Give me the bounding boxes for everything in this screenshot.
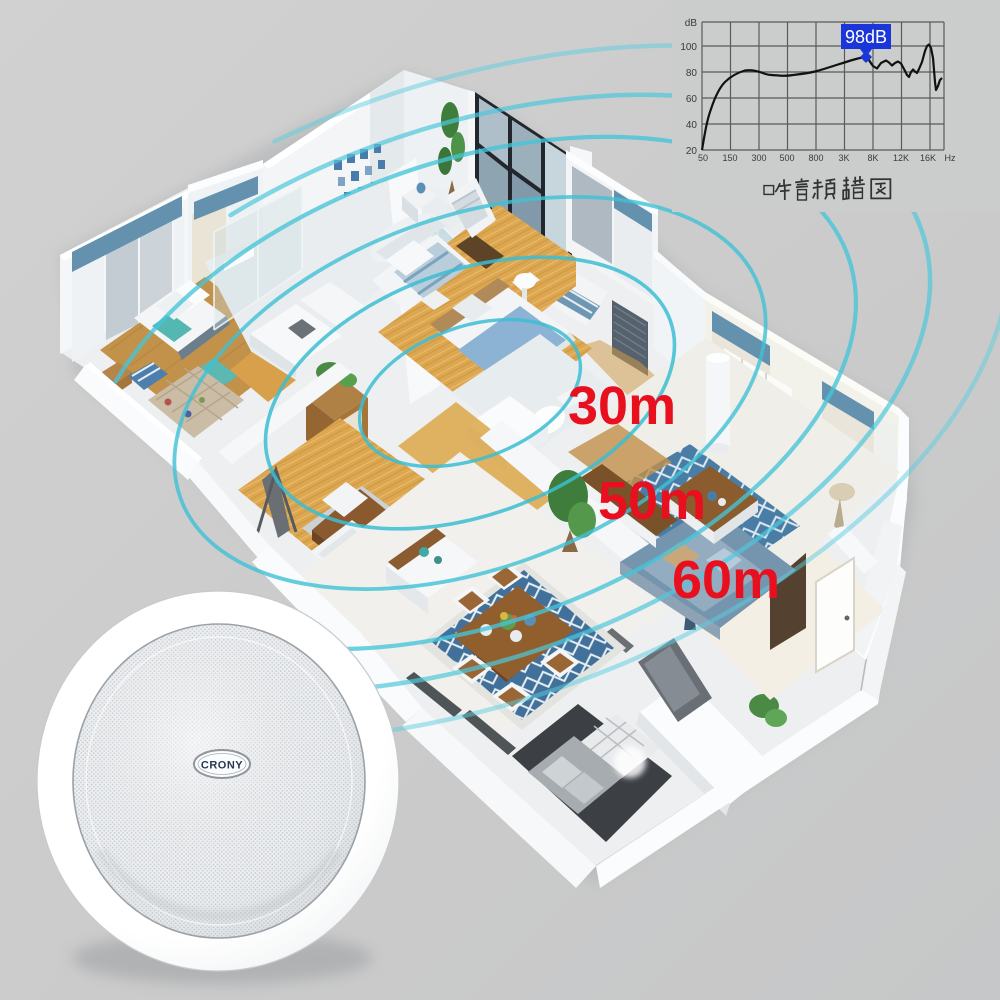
svg-text:800: 800 — [808, 153, 823, 163]
svg-text:50m: 50m — [598, 471, 706, 531]
svg-text:40: 40 — [686, 120, 698, 131]
svg-text:100: 100 — [680, 42, 697, 53]
svg-text:60m: 60m — [672, 550, 780, 610]
svg-text:Hz: Hz — [945, 153, 956, 163]
svg-text:50: 50 — [698, 153, 708, 163]
svg-text:60: 60 — [686, 94, 698, 105]
svg-text:3K: 3K — [838, 153, 849, 163]
svg-text:300: 300 — [751, 153, 766, 163]
svg-text:CRONY: CRONY — [201, 760, 243, 772]
svg-text:80: 80 — [686, 68, 698, 79]
svg-text:12K: 12K — [893, 153, 909, 163]
svg-text:98dB: 98dB — [845, 27, 887, 47]
svg-text:150: 150 — [722, 153, 737, 163]
svg-text:8K: 8K — [867, 153, 878, 163]
svg-text:30m: 30m — [568, 376, 676, 436]
svg-text:500: 500 — [779, 153, 794, 163]
svg-text:20: 20 — [686, 146, 698, 157]
svg-text:dB: dB — [685, 18, 698, 29]
svg-text:16K: 16K — [920, 153, 936, 163]
